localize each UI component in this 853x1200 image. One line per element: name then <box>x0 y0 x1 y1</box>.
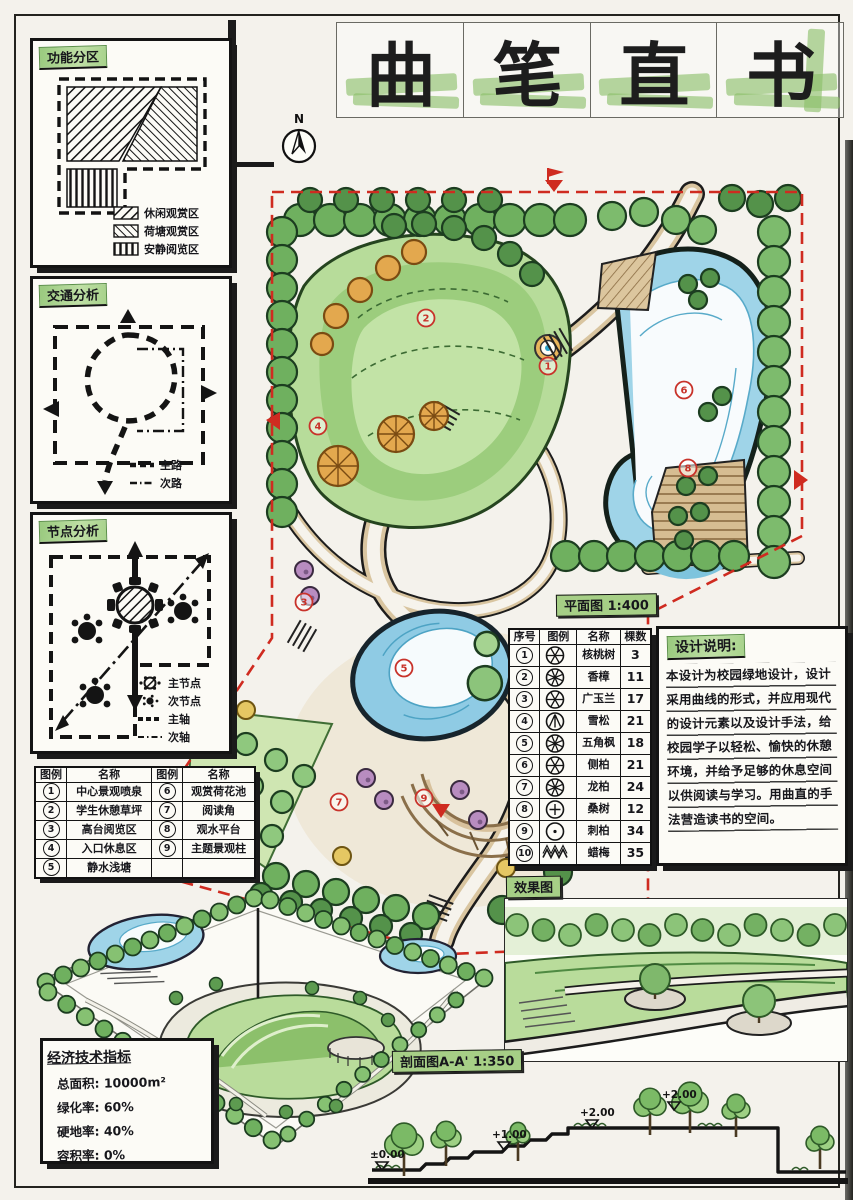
circled-number: 3 <box>516 691 533 708</box>
plant-row: 3广玉兰17 <box>509 688 651 710</box>
tree-icon <box>524 204 556 236</box>
tree-icon <box>718 924 740 946</box>
tree-icon <box>281 1127 296 1142</box>
tree-icon <box>607 541 637 571</box>
circled-number: 5 <box>43 859 60 876</box>
plant-no-cell: 9 <box>509 820 540 842</box>
plant-count-cell: 21 <box>620 710 651 732</box>
tree-icon <box>669 507 687 525</box>
legend-entry-label: 次路 <box>160 475 182 491</box>
legend-entry: 休闲观赏区 <box>113 205 221 221</box>
purple-shrub-dot <box>304 570 309 575</box>
column-header: 名称 <box>577 629 620 644</box>
north-compass: N <box>276 110 322 170</box>
tree-icon <box>262 892 279 909</box>
plant-name-cell: 核桃树 <box>577 644 620 666</box>
orange-tree-icon <box>324 304 348 328</box>
purple-shrub-icon <box>469 811 487 829</box>
dot-plant-symbol-icon <box>541 821 569 842</box>
tree-icon <box>351 924 368 941</box>
plan-marker-number: 8 <box>685 464 692 475</box>
plant-count-cell: 3 <box>620 644 651 666</box>
seg-plant-symbol-icon <box>541 645 569 666</box>
section-label: 剖面图A-A' 1:350 <box>392 1049 523 1073</box>
tree-icon <box>612 919 634 941</box>
plant-name-cell: 蜡梅 <box>577 842 620 865</box>
plant-count-cell: 11 <box>620 666 651 688</box>
plant-name-cell: 五角枫 <box>577 732 620 754</box>
tree-icon <box>551 541 581 571</box>
tree-icon <box>824 914 846 936</box>
tree-icon <box>235 733 257 755</box>
tree-icon <box>758 426 790 458</box>
legend-name-cell: 阅读角 <box>183 801 255 820</box>
plant-row: 8桑树12 <box>509 798 651 820</box>
tree-icon <box>412 212 436 236</box>
tree-icon <box>176 918 193 935</box>
legend-entry: 主节点 <box>137 675 223 691</box>
economic-indicators-title: 经济技术指标 <box>47 1046 131 1067</box>
column-header: 名称 <box>183 767 255 782</box>
tree-icon <box>210 978 223 991</box>
tree-icon <box>476 970 493 987</box>
tree-icon <box>701 269 719 287</box>
tree-icon <box>246 890 263 907</box>
circled-number: 6 <box>159 783 176 800</box>
elevation-mark: ±0.00 <box>370 1149 405 1161</box>
plant-symbol-cell <box>540 644 577 666</box>
yellow-shrub-icon <box>333 847 351 865</box>
tree-icon <box>124 939 141 956</box>
design-notes-body: 本设计为校园绿地设计，设计采用曲线的形式，并应用现代的设计元素以及设计手法，给校… <box>666 662 838 832</box>
column-header: 序号 <box>509 629 540 644</box>
tree-icon <box>533 919 555 941</box>
lake-deck-top <box>598 252 656 310</box>
tree-icon <box>411 1022 426 1037</box>
render-perspective-sketch <box>504 898 848 1062</box>
tree-icon <box>271 791 293 813</box>
tree-icon <box>159 925 176 942</box>
traffic-analysis-panel: 交通分析 主路次路 <box>30 276 232 504</box>
title-char: 直 <box>590 23 717 117</box>
plan-marker-number: 6 <box>681 386 688 397</box>
purple-shrub-dot <box>384 800 389 805</box>
circled-number: 5 <box>516 735 533 752</box>
circled-number: 10 <box>516 845 533 862</box>
tree-icon <box>442 216 466 240</box>
plant-name-cell: 侧柏 <box>577 754 620 776</box>
design-notes-panel: 设计说明: 本设计为校园绿地设计，设计采用曲线的形式，并应用现代的设计元素以及设… <box>656 626 848 866</box>
orange-tree-icon <box>311 333 333 355</box>
title-char: 书 <box>716 23 843 117</box>
tree-icon <box>798 924 820 946</box>
tree-icon <box>679 275 697 293</box>
legend-entry-label: 次轴 <box>168 729 190 745</box>
plant-no-cell: 5 <box>509 732 540 754</box>
tree-icon <box>745 914 767 936</box>
legend-name-cell: 高台阅览区 <box>67 820 152 839</box>
circled-number: 2 <box>516 669 533 686</box>
legend-name-cell: 中心景观喷泉 <box>67 782 152 801</box>
legend-entry: 次轴 <box>137 729 223 745</box>
legend-name-cell <box>183 858 255 878</box>
plan-marker-number: 1 <box>545 362 552 373</box>
function-zoning-diagram <box>33 69 229 219</box>
legend-entry: 次路 <box>129 475 221 491</box>
tree-icon <box>758 456 790 488</box>
elevation-mark: +2.00 <box>580 1107 615 1119</box>
title-char-text: 直 <box>619 20 687 121</box>
tree-icon <box>436 1121 456 1141</box>
plant-symbol-cell <box>540 754 577 776</box>
legend-name-cell: 观水平台 <box>183 820 255 839</box>
plant-no-cell: 8 <box>509 798 540 820</box>
table-row: 3高台阅览区8观水平台 <box>35 820 255 839</box>
legend-number-cell: 5 <box>35 858 67 878</box>
elevation-mark: +1.00 <box>492 1129 527 1141</box>
tree-icon <box>404 944 421 961</box>
plant-no-cell: 10 <box>509 842 540 865</box>
orange-tree-icon <box>348 278 372 302</box>
tree-icon <box>758 396 790 428</box>
column-header: 棵数 <box>620 629 651 644</box>
legend-entry-label: 荷塘观赏区 <box>144 223 199 239</box>
plant-symbol-cell <box>540 842 577 865</box>
legend-number-cell: 1 <box>35 782 67 801</box>
economic-indicator-line: 总面积: 10000m² <box>57 1070 207 1092</box>
table-header-row: 图例名称图例名称 <box>35 767 255 782</box>
legend-entry-label: 主路 <box>160 457 182 473</box>
plant-name-cell: 龙柏 <box>577 776 620 798</box>
tree-icon <box>279 898 296 915</box>
purple-shrub-dot <box>460 790 465 795</box>
plant-row: 10蜡梅35 <box>509 842 651 865</box>
circled-number: 4 <box>43 840 60 857</box>
plant-row: 2香樟11 <box>509 666 651 688</box>
plant-row: 4雪松21 <box>509 710 651 732</box>
tree-icon <box>691 503 709 521</box>
plant-schedule-table: 序号图例名称棵数1核桃树32香樟113广玉兰174雪松215五角枫186侧柏21… <box>508 628 652 866</box>
plan-marker-number: 3 <box>301 598 308 609</box>
plant-no-cell: 2 <box>509 666 540 688</box>
plan-marker-number: 2 <box>423 314 430 325</box>
plan-legend-table: 图例名称图例名称1中心景观喷泉6观赏荷花池2学生休憩草坪7阅读角3高台阅览区8观… <box>34 766 256 879</box>
plant-count-cell: 21 <box>620 754 651 776</box>
economic-indicator-line: 绿化率: 60% <box>57 1094 207 1116</box>
tree-icon <box>369 931 386 948</box>
tree-icon <box>422 950 439 967</box>
tree-icon <box>639 924 661 946</box>
tree-icon <box>306 982 319 995</box>
tree-icon <box>211 904 228 921</box>
tree-icon <box>230 1098 243 1111</box>
plant-symbol-cell <box>540 732 577 754</box>
tree-icon <box>382 1014 395 1027</box>
plant-no-cell: 6 <box>509 754 540 776</box>
tree-icon <box>293 765 315 787</box>
sub-node-legend-swatch-icon <box>137 694 163 708</box>
seg2-plant-symbol-icon <box>541 733 569 754</box>
tree-icon <box>727 1094 745 1112</box>
tree-icon <box>688 216 716 244</box>
tree-icon <box>430 1007 445 1022</box>
tree-icon <box>330 1100 343 1113</box>
plant-name-cell: 广玉兰 <box>577 688 620 710</box>
tree-icon <box>386 937 403 954</box>
circled-number: 1 <box>516 647 533 664</box>
panel-title: 功能分区 <box>39 45 108 70</box>
purple-shrub-icon <box>295 561 313 579</box>
table-header-row: 序号图例名称棵数 <box>509 629 651 644</box>
tree-icon <box>194 911 211 928</box>
tree-icon <box>90 953 107 970</box>
column-header: 图例 <box>540 629 577 644</box>
circled-number: 9 <box>516 823 533 840</box>
title-char: 笔 <box>463 23 590 117</box>
tree-icon <box>315 911 332 928</box>
tree-icon <box>297 905 314 922</box>
tree-icon <box>758 546 790 578</box>
tree-icon <box>691 541 721 571</box>
column-header: 图例 <box>35 767 67 782</box>
legend-number-cell: 3 <box>35 820 67 839</box>
tree-icon <box>699 403 717 421</box>
seg-plant-symbol-icon <box>541 755 569 776</box>
tree-icon <box>579 541 609 571</box>
circled-number: 7 <box>516 779 533 796</box>
plant-symbol-cell <box>540 820 577 842</box>
legend-number-cell: 8 <box>152 820 183 839</box>
presentation-board: 曲笔直书 N <box>0 0 853 1200</box>
tree-icon <box>747 191 773 217</box>
plant-symbol-cell <box>540 688 577 710</box>
legend-number-cell: 2 <box>35 801 67 820</box>
legend-entry-label: 主轴 <box>168 711 190 727</box>
economic-indicators-panel: 经济技术指标 总面积: 10000m²绿化率: 60%硬地率: 40%容积率: … <box>40 1038 214 1164</box>
legend-name-cell: 观赏荷花池 <box>183 782 255 801</box>
plan-marker-number: 5 <box>401 664 408 675</box>
tree-icon <box>758 516 790 548</box>
lake <box>598 249 772 573</box>
legend-number-cell <box>152 858 183 878</box>
circled-number: 6 <box>516 757 533 774</box>
tree-icon <box>699 467 717 485</box>
circled-number: 7 <box>159 802 176 819</box>
plant-name-cell: 雪松 <box>577 710 620 732</box>
tree-icon <box>77 1008 94 1025</box>
purple-shrub-icon <box>451 781 469 799</box>
tree-icon <box>775 185 801 211</box>
tree-icon <box>675 531 693 549</box>
north-label: N <box>294 112 304 126</box>
tree-icon <box>449 993 464 1008</box>
tree-icon <box>299 1112 314 1127</box>
tree-icon <box>689 291 707 309</box>
plant-symbol-cell <box>540 666 577 688</box>
plan-marker-number: 9 <box>421 794 428 805</box>
circled-number: 4 <box>516 713 533 730</box>
title-char-text: 笔 <box>493 20 561 121</box>
function-zoning-panel: 功能分区 休闲观赏区荷塘观赏区安静阅览区 <box>30 38 232 268</box>
table-row: 2学生休憩草坪7阅读角 <box>35 801 255 820</box>
dash-bold-legend-swatch-icon <box>129 458 155 472</box>
tree-icon <box>337 1082 352 1097</box>
plant-row: 1核桃树3 <box>509 644 651 666</box>
plant-name-cell: 刺柏 <box>577 820 620 842</box>
plan-scale-label: 平面图 1:400 <box>556 593 657 616</box>
table-row: 4入口休息区9主题景观柱 <box>35 839 255 858</box>
legend-entry-label: 次节点 <box>168 693 201 709</box>
legend-name-cell: 入口休息区 <box>67 839 152 858</box>
hatch-nw-legend-swatch-icon <box>113 224 139 238</box>
elevation-mark: +2.00 <box>662 1089 697 1101</box>
tree-icon <box>40 984 57 1001</box>
legend-name-cell: 学生休憩草坪 <box>67 801 152 820</box>
tree-icon <box>55 967 72 984</box>
boundary-flag <box>548 168 564 177</box>
tree-icon <box>598 202 626 230</box>
plant-symbol-cell <box>540 710 577 732</box>
tree-icon <box>586 914 608 936</box>
tree-icon <box>758 246 790 278</box>
circled-number: 2 <box>43 802 60 819</box>
plant-row: 9刺柏34 <box>509 820 651 842</box>
tree-icon <box>280 1106 293 1119</box>
seg2-plant-symbol-icon <box>541 777 569 798</box>
legend-name-cell: 静水浅塘 <box>67 858 152 878</box>
tree-icon <box>382 214 406 238</box>
column-header: 名称 <box>67 767 152 782</box>
legend-number-cell: 4 <box>35 839 67 858</box>
axis-main-legend-swatch-icon <box>137 712 163 726</box>
main-node-legend-swatch-icon <box>137 676 163 690</box>
legend-entry: 荷塘观赏区 <box>113 223 221 239</box>
tree-icon <box>559 924 581 946</box>
table-row: 1中心景观喷泉6观赏荷花池 <box>35 782 255 801</box>
tree-icon <box>440 957 457 974</box>
tree-icon <box>228 897 245 914</box>
legend-entry-label: 主节点 <box>168 675 201 691</box>
tree-icon <box>391 1123 416 1148</box>
legend-name-cell: 主题景观柱 <box>183 839 255 858</box>
plant-row: 6侧柏21 <box>509 754 651 776</box>
legend-entry: 次节点 <box>137 693 223 709</box>
tree-icon <box>640 1088 661 1109</box>
seg-plant-symbol-icon <box>541 689 569 710</box>
plant-row: 7龙柏24 <box>509 776 651 798</box>
tree-icon <box>520 262 544 286</box>
frame-bar-2 <box>228 162 274 167</box>
tree-icon <box>758 366 790 398</box>
purple-shrub-dot <box>366 778 371 783</box>
title-char-text: 曲 <box>366 20 434 121</box>
plant-no-cell: 7 <box>509 776 540 798</box>
plant-count-cell: 17 <box>620 688 651 710</box>
render-view-label: 效果图 <box>506 876 561 899</box>
tree-icon <box>245 1119 262 1136</box>
purple-shrub-icon <box>375 791 393 809</box>
legend-entry-label: 安静阅览区 <box>144 241 199 257</box>
tree-icon <box>811 1126 829 1144</box>
tree-icon <box>107 946 124 963</box>
tree-icon <box>261 825 283 847</box>
axis-sub-legend-swatch-icon <box>137 730 163 744</box>
purple-shrub-dot <box>478 820 483 825</box>
tree-icon <box>758 306 790 338</box>
purple-shrub-icon <box>357 769 375 787</box>
hatch-ne-legend-swatch-icon <box>113 206 139 220</box>
panel-title: 交通分析 <box>39 283 108 308</box>
tree-icon <box>758 336 790 368</box>
tree-icon <box>665 914 687 936</box>
tree-icon <box>96 1021 113 1038</box>
tree-icon <box>635 541 665 571</box>
tree-icon <box>758 486 790 518</box>
legend-entry: 安静阅览区 <box>113 241 221 257</box>
tree-icon <box>58 996 75 1013</box>
plant-name-cell: 香樟 <box>577 666 620 688</box>
seg2-plant-symbol-icon <box>541 667 569 688</box>
tree-icon <box>354 992 367 1005</box>
tree-icon <box>374 1052 389 1067</box>
circled-number: 3 <box>43 821 60 838</box>
tree-icon <box>630 198 658 226</box>
tree-icon <box>771 919 793 941</box>
orange-tree-icon <box>402 240 426 264</box>
tree-icon <box>498 242 522 266</box>
circled-number: 8 <box>159 821 176 838</box>
plant-symbol-cell <box>540 776 577 798</box>
tree-icon <box>662 206 690 234</box>
hatch-v-legend-swatch-icon <box>113 242 139 256</box>
plant-count-cell: 18 <box>620 732 651 754</box>
plant-no-cell: 4 <box>509 710 540 732</box>
plant-row: 5五角枫18 <box>509 732 651 754</box>
dash-dot-legend-swatch-icon <box>129 476 155 490</box>
plant-count-cell: 35 <box>620 842 651 865</box>
tree-icon <box>677 477 695 495</box>
section-drawing: ±0.00 +1.00 +2.00 +2.00 <box>368 1078 848 1190</box>
legend-entry-label: 休闲观赏区 <box>144 205 199 221</box>
node-analysis-panel: 节点分析 <box>30 512 232 754</box>
tree-icon <box>692 919 714 941</box>
plant-count-cell: 34 <box>620 820 651 842</box>
title-char-text: 书 <box>746 20 814 121</box>
tree-icon <box>758 216 790 248</box>
column-header: 图例 <box>152 767 183 782</box>
legend-number-cell: 7 <box>152 801 183 820</box>
tree-icon <box>719 185 745 211</box>
tree-icon <box>170 992 183 1005</box>
cross-plant-symbol-icon <box>541 799 569 820</box>
tree-icon <box>458 963 475 980</box>
circled-number: 8 <box>516 801 533 818</box>
circled-number: 9 <box>159 840 176 857</box>
board-title: 曲笔直书 <box>336 22 844 118</box>
plant-count-cell: 12 <box>620 798 651 820</box>
plant-count-cell: 24 <box>620 776 651 798</box>
orange-tree-icon <box>376 256 400 280</box>
design-notes-title: 设计说明: <box>667 634 745 660</box>
tree-icon <box>72 960 89 977</box>
cedar-plant-symbol-icon <box>541 711 569 732</box>
circled-number: 1 <box>43 783 60 800</box>
tree-icon <box>142 932 159 949</box>
tree-icon <box>264 1132 281 1149</box>
tree-icon <box>758 276 790 308</box>
legend-entry: 主轴 <box>137 711 223 727</box>
panel-title: 节点分析 <box>39 519 108 544</box>
